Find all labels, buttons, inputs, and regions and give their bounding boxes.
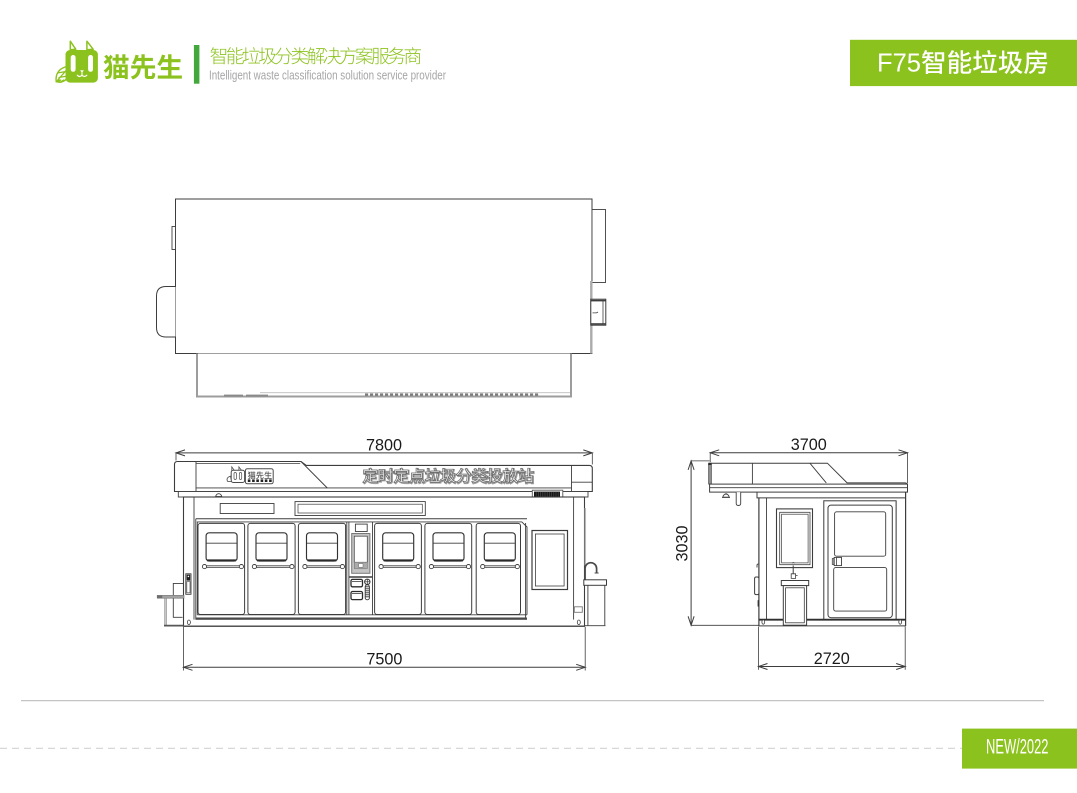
svg-text:F75: F75 [877,50,921,78]
svg-text:NEW/2022: NEW/2022 [986,735,1049,759]
svg-text:7500: 7500 [366,651,402,669]
svg-text:7800: 7800 [366,436,402,454]
svg-text:3700: 3700 [791,436,827,454]
svg-text:2720: 2720 [814,650,850,668]
svg-text:3030: 3030 [674,525,692,561]
svg-text:Intelligent waste classificati: Intelligent waste classification solutio… [209,67,446,82]
